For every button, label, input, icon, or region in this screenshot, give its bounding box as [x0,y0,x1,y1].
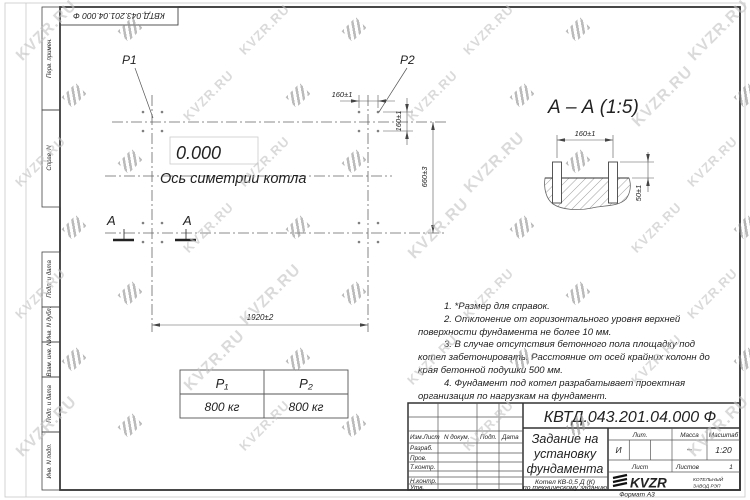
sheets-label: Листов [675,464,700,471]
row-prov: Пров. [410,455,427,462]
section-dimension-160: 160±1 [557,129,613,158]
sheet-label: Лист [631,464,648,471]
side-label-sprav-n: Справ. N [47,145,53,171]
drawing-sheet: КВТД.043.201.04.000 Ф Перв. примен. Спра… [0,0,750,500]
note-4: 4. Фундамент под котел разрабатывает про… [418,378,718,404]
format-label: Формат А3 [619,492,655,499]
load-table-value-p2: 800 кг [289,400,324,414]
load-table-header-p2: P₂ [299,376,313,391]
svg-text:50±1: 50±1 [634,185,643,202]
section-view: А – А (1:5) 160±1 [545,97,654,210]
note-3: 3. В случае отсутствия бетонного пола пл… [418,339,718,377]
svg-text:Задание на: Задание на [532,432,599,446]
svg-text:фундамента: фундамента [527,462,604,476]
section-letter-right: А [182,213,192,228]
svg-text:160±1: 160±1 [394,111,403,132]
side-label-perv-primen: Перв. примен. [47,38,53,78]
svg-text:1920±2: 1920±2 [247,313,274,322]
sheets-value: 1 [729,464,733,471]
rotated-doc-number: КВТД.043.201.04.000 Ф [73,11,165,21]
section-title: А – А (1:5) [547,97,639,118]
col-n-dokum: N докум. [444,433,469,441]
svg-text:160±1: 160±1 [575,129,596,138]
load-label-p1: P1 [122,53,137,67]
rotated-doc-number-box: КВТД.043.201.04.000 Ф [60,7,178,25]
load-label-p2: P2 [400,53,415,67]
mass-value: – [686,444,692,454]
technical-notes: 1. *Размер для справок. 2. Отклонение от… [418,301,718,403]
svg-text:установку: установку [533,447,597,461]
scale-value: 1:20 [715,445,732,455]
lit-label: Лит. [632,432,648,439]
row-razrab: Разраб. [410,444,433,452]
side-label-podp-data-2: Подп. и дата [47,385,53,423]
side-label-vzam-inv: Взам. инв. N [47,341,53,377]
col-podp: Подп. [480,433,497,441]
row-utv: Утв. [409,485,424,492]
side-labels: Перв. примен. Справ. N Подп. и дата Инв.… [47,38,53,478]
side-label-inv-dubl: Инв. N дубл. [47,307,53,342]
dimension-1920: 1920±2 [152,313,368,327]
dimension-660: 660±3 [420,122,435,233]
svg-text:160±1: 160±1 [332,90,353,99]
side-label-inv-podl: Инв. N подл. [47,443,53,478]
row-tkontr: Т.контр. [410,464,435,471]
section-cut-marks: А А [106,213,196,240]
load-table-header-p1: P₁ [216,376,229,391]
kvzr-sub2: ЗАВОД РЭП [693,484,721,490]
col-data: Дата [501,434,519,441]
load-table-value-p1: 800 кг [205,400,240,414]
section-letter-left: А [106,213,116,228]
note-1: 1. *Размер для справок. [418,301,718,314]
load-table: P₁ P₂ 800 кг 800 кг [180,370,348,418]
col-izm-list: Изм.Лист [410,434,440,441]
svg-text:660±3: 660±3 [420,166,429,188]
title-block-doc-number: КВТД.043.201.04.000 Ф [544,409,717,426]
kvzr-logo: KVZR КОТЕЛЬНЫЙ ЗАВОД РЭП [613,475,724,491]
title-block: КВТД.043.201.04.000 Ф Изм.Лист N докум. … [408,403,740,492]
kvzr-spring-icon [613,475,627,486]
lit-value: И [615,445,622,455]
scale-label: Масштаб [709,431,739,439]
dimension-160-horizontal: 160±1 [332,90,395,108]
kvzr-brand: KVZR [630,476,667,491]
symmetry-axis-label: Ось симетрии котла [160,171,306,187]
product-line2: по техническому заданию [523,484,607,492]
mass-label: Масса [680,432,699,439]
title-block-title: Задание на установку фундамента [527,432,604,476]
side-label-podp-data-1: Подп. и дата [47,260,53,298]
dimension-160-vertical: 160±1 [383,98,413,145]
level-mark: 0.000 [176,143,221,163]
load-leaders [135,68,407,118]
plan-view: P1 P2 160±1 160±1 [105,53,446,332]
kvzr-sub1: КОТЕЛЬНЫЙ [693,475,724,483]
note-2: 2. Отклонение от горизонтального уровня … [418,314,718,340]
drawing-canvas: КВТД.043.201.04.000 Ф Перв. примен. Спра… [0,0,750,500]
